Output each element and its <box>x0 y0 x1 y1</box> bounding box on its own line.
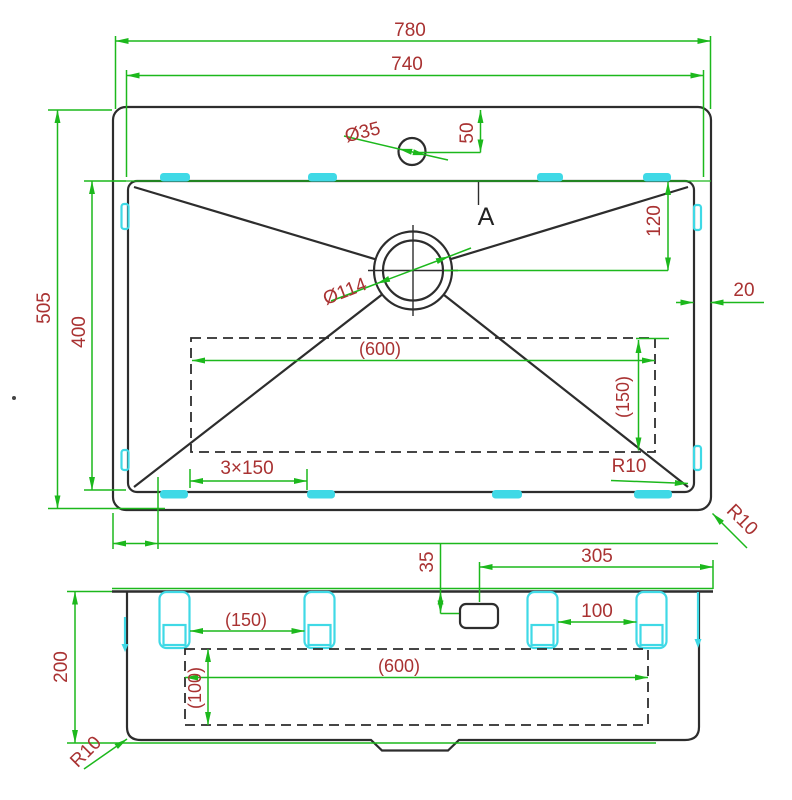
section-clip-4-nut <box>641 625 663 645</box>
faucet-hole-section <box>460 604 498 628</box>
clip-top-1 <box>160 173 190 182</box>
dim-200-label: 200 <box>51 651 72 683</box>
section-clip-3-nut <box>532 625 554 645</box>
clip-bottom-1 <box>160 490 188 499</box>
top-view: A 780 740 505 400 50 Ø35 Ø114 <box>34 20 764 549</box>
dim-600-section-label: (600) <box>378 656 420 676</box>
clip-left-1 <box>122 204 129 229</box>
section-clip-2-nut <box>309 625 331 645</box>
dim-35-label: 35 <box>417 551 438 572</box>
dim-20-label: 20 <box>733 280 754 301</box>
dia114-label: Ø114 <box>320 274 370 310</box>
clip-bottom-4 <box>634 490 672 499</box>
dim-600-top-label: (600) <box>359 339 401 359</box>
clip-left-2 <box>122 450 129 470</box>
dim-100v-section-label: (100) <box>185 667 205 709</box>
clip-bottom-2 <box>307 490 335 499</box>
clip-right-1 <box>694 205 701 230</box>
dia35-label: Ø35 <box>343 118 383 147</box>
r10-outer-label: R10 <box>722 500 761 539</box>
r10-inner-label: R10 <box>612 456 647 477</box>
dim-150-section-label: (150) <box>225 610 267 630</box>
cad-drawing: A 780 740 505 400 50 Ø35 Ø114 <box>0 0 792 800</box>
dim-740-label: 740 <box>391 54 423 75</box>
clip-top-4 <box>643 173 671 182</box>
slope-line-tl <box>134 187 376 259</box>
base-footprint-dashed <box>191 338 655 452</box>
r10-section-label: R10 <box>66 732 105 771</box>
dim-780-label: 780 <box>394 20 426 41</box>
section-clip-right-arrow <box>695 639 702 648</box>
dim-150-top-label: (150) <box>613 376 633 418</box>
section-view: 305 35 (150) 100 (600) (100) 200 R10 <box>51 544 713 772</box>
sink-bowl-outline <box>128 181 694 492</box>
clip-bottom-3 <box>492 490 522 499</box>
clip-top-2 <box>308 173 337 182</box>
dim-3x150-label: 3×150 <box>220 458 273 479</box>
dim-50-label: 50 <box>457 122 478 143</box>
dim-100-section-label: 100 <box>581 601 613 622</box>
dia35-leader-ext <box>426 155 448 160</box>
slope-line-br <box>444 295 688 487</box>
dim-400-label: 400 <box>69 316 90 348</box>
clip-top-3 <box>537 173 563 182</box>
r10-inner-leader <box>611 481 688 484</box>
stray-dot <box>12 396 16 400</box>
clip-right-2 <box>694 446 701 470</box>
dim-120-label: 120 <box>644 205 665 237</box>
dim-305-label: 305 <box>581 546 613 567</box>
section-marker-label: A <box>478 203 495 231</box>
sink-drawing-svg: A 780 740 505 400 50 Ø35 Ø114 <box>0 0 792 800</box>
dim-505-label: 505 <box>34 292 55 324</box>
section-clip-1-nut <box>164 625 186 645</box>
